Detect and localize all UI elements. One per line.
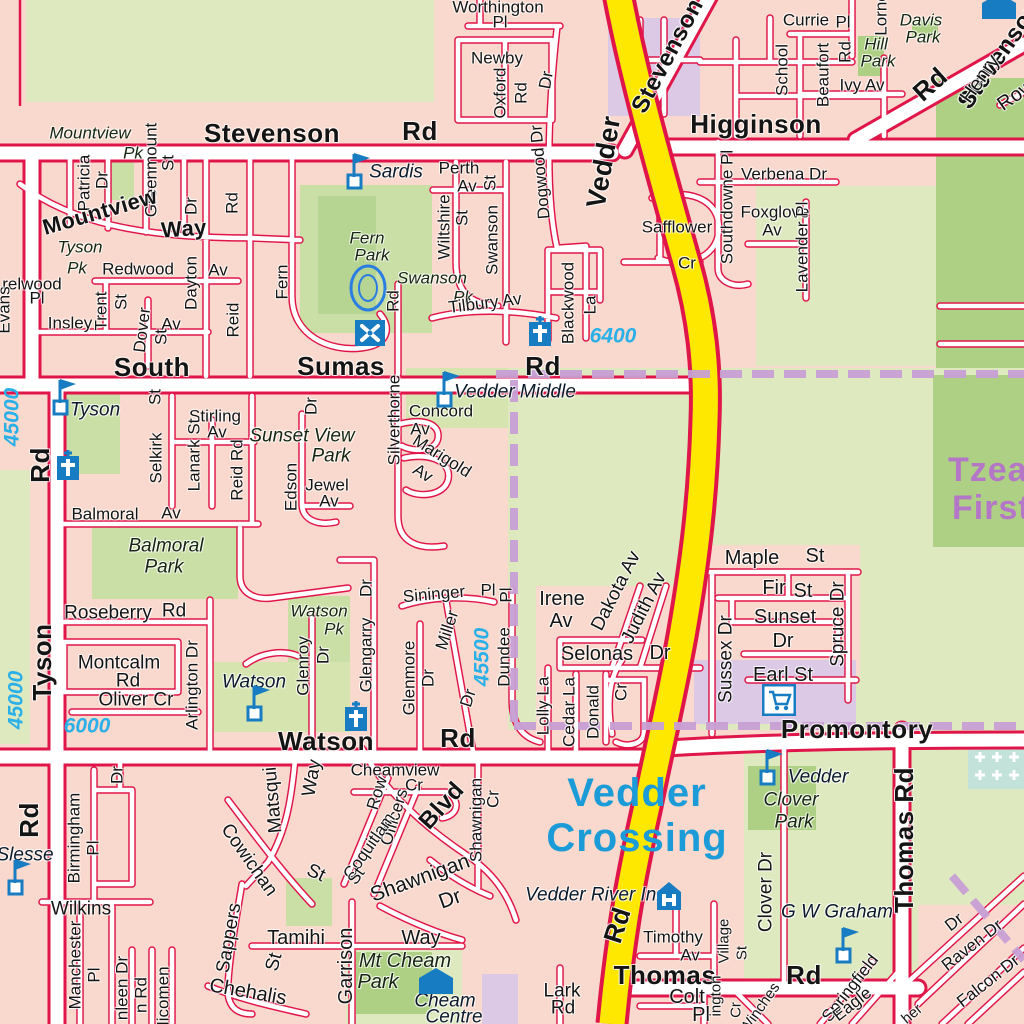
labels-layer: WorthingtonPlNewbyOxfordRdDrDogwood DrVe… — [0, 0, 1024, 1024]
map-label: Reid Rd — [229, 439, 246, 500]
map-label: Av — [550, 611, 573, 631]
map-label: Fir — [762, 578, 785, 598]
map-label: Balmoral — [129, 537, 204, 556]
map-label: Mountview — [49, 125, 130, 142]
map-label: Pk — [67, 260, 87, 277]
map-label: Lanark St — [186, 419, 203, 492]
map-label: Pk — [324, 621, 344, 638]
map-label: Tyson — [29, 623, 55, 700]
map-label: Park — [906, 29, 941, 46]
map-label: Rd — [116, 672, 140, 691]
map-label: Oxford — [492, 67, 509, 118]
map-label: Dr — [649, 643, 670, 663]
map-label: Rd — [837, 41, 854, 63]
map-label: Dr — [109, 766, 126, 784]
map-label: Chehalis — [208, 975, 288, 1008]
map-label: Cr — [485, 790, 502, 808]
map-label: Sumas — [297, 353, 385, 379]
map-label: Watson — [290, 603, 347, 620]
map-label: Clover Dr — [757, 852, 776, 932]
map-label: Clover — [764, 791, 819, 810]
map-label: Oliver Cr — [99, 691, 174, 710]
map-label: n Rd — [133, 977, 150, 1013]
map-label: Selkirk — [148, 432, 165, 483]
map-label: Rd — [551, 999, 575, 1018]
map-label: Dover — [131, 306, 153, 353]
map-label: Insley — [48, 315, 92, 332]
map-label: Rd — [162, 602, 186, 621]
map-label: Swanson — [397, 270, 467, 287]
map-label: Av — [410, 461, 436, 486]
map-label: Redwood — [102, 261, 174, 278]
map-label: Evans — [0, 286, 13, 333]
map-label: Park — [144, 558, 183, 577]
map-label: Sunset — [754, 607, 816, 627]
map-label: Dr — [436, 885, 464, 912]
map-label: St — [153, 329, 170, 345]
map-label: St — [806, 546, 825, 566]
map-label: Promontory — [781, 716, 933, 742]
map-label: Wiltshire — [436, 194, 453, 259]
map-label: Manchester — [67, 921, 84, 1010]
map-label: Watson — [278, 728, 374, 754]
map-label: St — [147, 389, 164, 405]
map-label: Thomas Rd — [891, 767, 917, 913]
map-label: Ivy Av — [839, 77, 884, 94]
map-label: Rd — [525, 353, 561, 379]
map-label: St — [113, 294, 130, 310]
map-label: Southdowne Pl — [719, 150, 736, 264]
map-label: 6400 — [590, 326, 637, 347]
map-label: Way — [401, 928, 440, 948]
map-label: Roseberry — [64, 604, 152, 623]
map-label: Dr — [358, 579, 375, 597]
map-label: Glenroy — [295, 636, 312, 696]
map-label: Park — [774, 813, 813, 832]
map-label: Shawnigan — [468, 778, 485, 862]
map-label: Rd — [440, 725, 476, 751]
map-label: Crossing — [546, 818, 727, 858]
map-label: Rd — [908, 62, 952, 105]
map-label: Cheamview — [351, 762, 440, 779]
map-label: Park — [311, 447, 350, 466]
map-label: 45000 — [6, 671, 27, 729]
map-label: Safflower — [642, 219, 713, 236]
map-label: Sunset View — [249, 427, 354, 446]
map-label: Perth — [439, 160, 480, 177]
map-label: Tzeachten — [948, 453, 1024, 487]
map-label: Village — [717, 919, 732, 964]
map-label: Balmoral — [71, 506, 138, 523]
map-label: Pl — [498, 587, 515, 602]
map-label: Tyson — [57, 239, 102, 256]
map-label: her — [899, 1001, 925, 1024]
map-label: Swanson — [484, 205, 501, 275]
map-label: St — [263, 951, 286, 973]
map-label: Reid — [225, 303, 242, 338]
map-label: La — [582, 296, 599, 315]
map-label: Selonas — [561, 644, 633, 664]
map-label: Earl St — [753, 665, 813, 685]
map-label: Sussex Dr — [717, 615, 736, 703]
street-map-canvas[interactable]: WorthingtonPlNewbyOxfordRdDrDogwood DrVe… — [0, 0, 1024, 1024]
map-label: Way — [160, 216, 207, 241]
map-label: Rd — [16, 802, 42, 838]
map-label: Rd — [385, 290, 402, 312]
map-label: Way — [299, 758, 324, 798]
map-label: Edson — [283, 463, 300, 511]
map-label: Av — [161, 505, 181, 522]
map-label: Dogwood Dr — [527, 124, 552, 220]
map-label: 6000 — [64, 716, 111, 737]
map-label: Blackwood — [560, 262, 577, 344]
map-label: ington — [709, 976, 724, 1017]
map-label: St — [304, 861, 328, 886]
map-label: Dr — [94, 171, 111, 189]
map-label: Vedder — [788, 768, 849, 787]
map-label: Dr — [457, 687, 479, 709]
map-label: Timothy — [643, 929, 703, 946]
map-label: Silverthorne — [386, 375, 403, 466]
map-label: Lavender Pl — [794, 202, 811, 293]
map-label: First Nation — [952, 491, 1024, 525]
map-label: Fern — [274, 265, 291, 300]
map-label: Nicomen — [155, 966, 172, 1024]
map-label: Maple — [725, 548, 779, 568]
map-label: St — [454, 210, 471, 226]
map-label: St — [735, 946, 750, 960]
map-label: Vedder — [567, 773, 706, 813]
map-label: nleen Dr — [114, 956, 131, 1020]
map-label: Rd — [27, 447, 53, 483]
map-label: Miller — [433, 608, 462, 652]
map-label: Garrison — [336, 928, 356, 1005]
map-label: Park — [861, 53, 896, 70]
map-label: Wilkins — [51, 900, 111, 919]
map-label: Thomas — [614, 962, 717, 988]
map-label: Rd — [224, 192, 241, 214]
map-label: Matsqui — [261, 766, 286, 834]
map-label: St — [794, 581, 813, 601]
map-label: Dundee — [496, 627, 513, 687]
map-label: School — [774, 44, 791, 96]
map-label: Dr — [942, 910, 967, 934]
map-label: Currie — [783, 12, 829, 29]
map-label: Glengarry — [358, 618, 375, 693]
map-label: Av — [457, 178, 477, 195]
map-label: Dayton — [183, 256, 200, 310]
map-label: Vedder — [583, 114, 626, 210]
map-label: Park — [355, 247, 390, 264]
map-label: Verbena Dr — [741, 166, 827, 183]
map-label: Vedder River Inn — [525, 886, 667, 905]
map-label: Spruce Dr — [829, 581, 848, 667]
map-label: Cedar La — [561, 677, 578, 747]
map-label: Dr — [772, 631, 793, 651]
map-label: Centre — [425, 1008, 482, 1024]
map-label: Pk — [123, 145, 143, 162]
map-label: Dr — [536, 70, 556, 91]
map-label: Newby — [471, 50, 523, 67]
map-label: Dr — [183, 197, 200, 215]
map-label: 45000 — [2, 388, 23, 446]
map-label: Dr — [303, 397, 320, 415]
map-label: Row — [994, 75, 1024, 114]
map-label: St — [160, 155, 177, 171]
map-label: Blvd — [415, 778, 469, 834]
map-label: Higginson — [690, 111, 822, 137]
map-label: Pl — [835, 14, 850, 31]
map-label: Irene — [539, 589, 585, 609]
map-label: 45500 — [472, 628, 493, 686]
map-label: Rd — [402, 118, 438, 144]
map-label: Rd — [599, 904, 635, 946]
map-label: Arlington Dr — [184, 640, 201, 730]
map-label: St — [482, 175, 499, 191]
map-label: Lorne — [873, 0, 890, 36]
map-label: Birmingham — [66, 793, 83, 884]
map-label: Cr — [678, 255, 696, 272]
map-label: Dr — [420, 669, 437, 687]
map-label: Pl — [29, 290, 44, 307]
map-label: G W Graham — [781, 903, 893, 922]
map-label: Cr — [613, 683, 630, 701]
map-label: Stevenson — [628, 0, 708, 117]
map-label: Mountview — [40, 185, 160, 239]
map-label: Hill — [864, 36, 888, 53]
map-label: Stevenson — [204, 120, 340, 146]
map-label: Glenmore — [401, 641, 418, 716]
map-label: Sininger — [402, 583, 466, 605]
map-label: Vedder Middle — [454, 383, 576, 402]
map-label: Davis — [900, 12, 943, 29]
map-label: Pl — [480, 582, 495, 599]
map-label: Rd — [513, 82, 530, 104]
map-label: Donald — [585, 685, 602, 739]
map-label: Lolly La — [535, 677, 552, 736]
map-label: Dr — [315, 646, 332, 664]
map-label: Rd — [786, 962, 822, 988]
map-label: Pl — [492, 14, 507, 31]
map-label: Av — [319, 493, 339, 510]
map-label: Tamihi — [267, 928, 325, 948]
map-label: Beaufort — [815, 43, 832, 107]
map-label: Pl — [86, 967, 103, 982]
map-label: Trent — [93, 291, 110, 330]
map-label: Sappers — [213, 901, 244, 974]
map-label: Cr — [729, 1002, 744, 1018]
map-label: Sardis — [369, 163, 423, 182]
map-label: South — [114, 354, 190, 380]
map-label: Park — [357, 972, 398, 992]
map-label: Av — [207, 424, 227, 441]
map-label: Pl — [85, 840, 102, 855]
map-label: Fern — [350, 230, 385, 247]
map-label: Av — [208, 262, 228, 279]
map-label: Av — [762, 222, 782, 239]
